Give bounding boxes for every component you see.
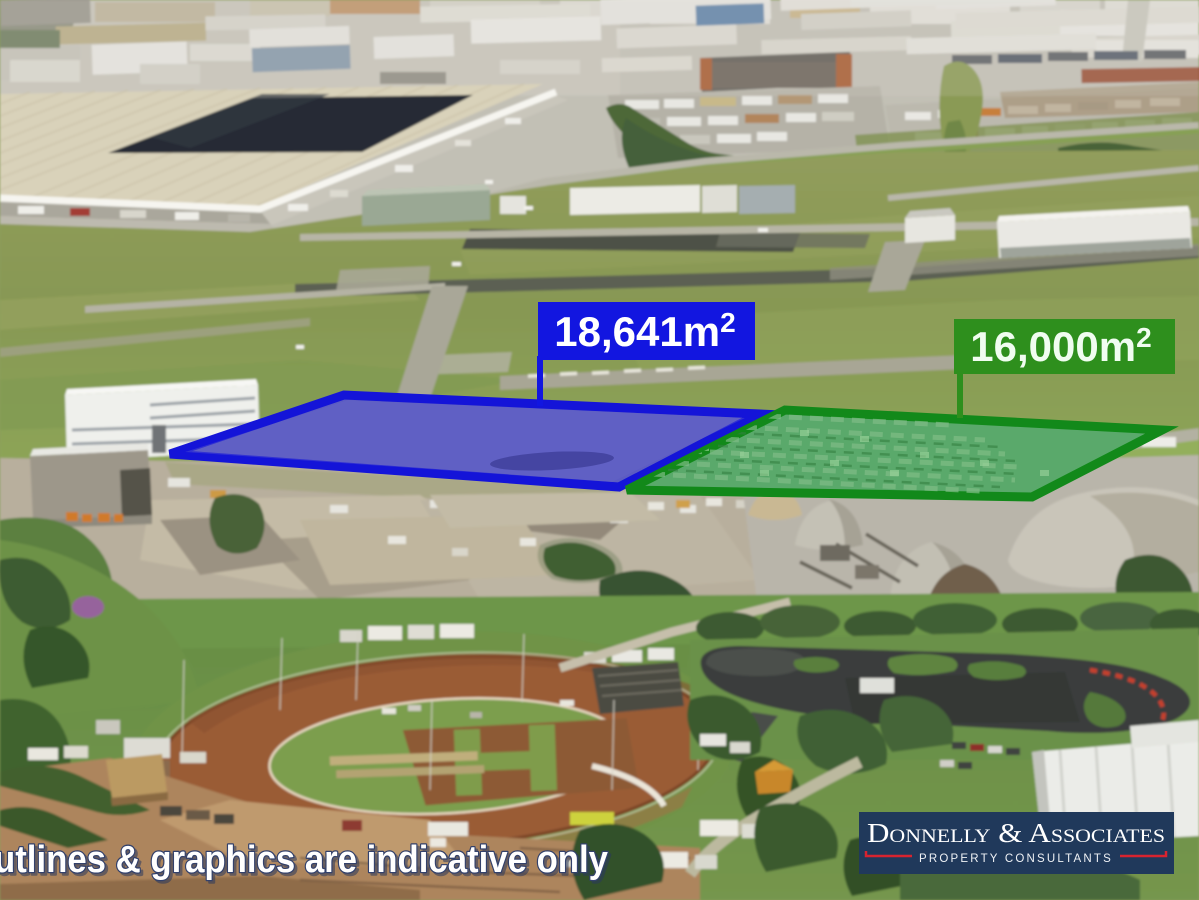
svg-text:utlines & graphics are indicat: utlines & graphics are indicative only <box>0 839 608 881</box>
svg-text:Donnelly & Associates: Donnelly & Associates <box>867 818 1165 848</box>
svg-text:18,641m2: 18,641m2 <box>554 307 735 355</box>
svg-text:PROPERTY CONSULTANTS: PROPERTY CONSULTANTS <box>919 853 1113 865</box>
svg-text:16,000m2: 16,000m2 <box>970 322 1151 370</box>
